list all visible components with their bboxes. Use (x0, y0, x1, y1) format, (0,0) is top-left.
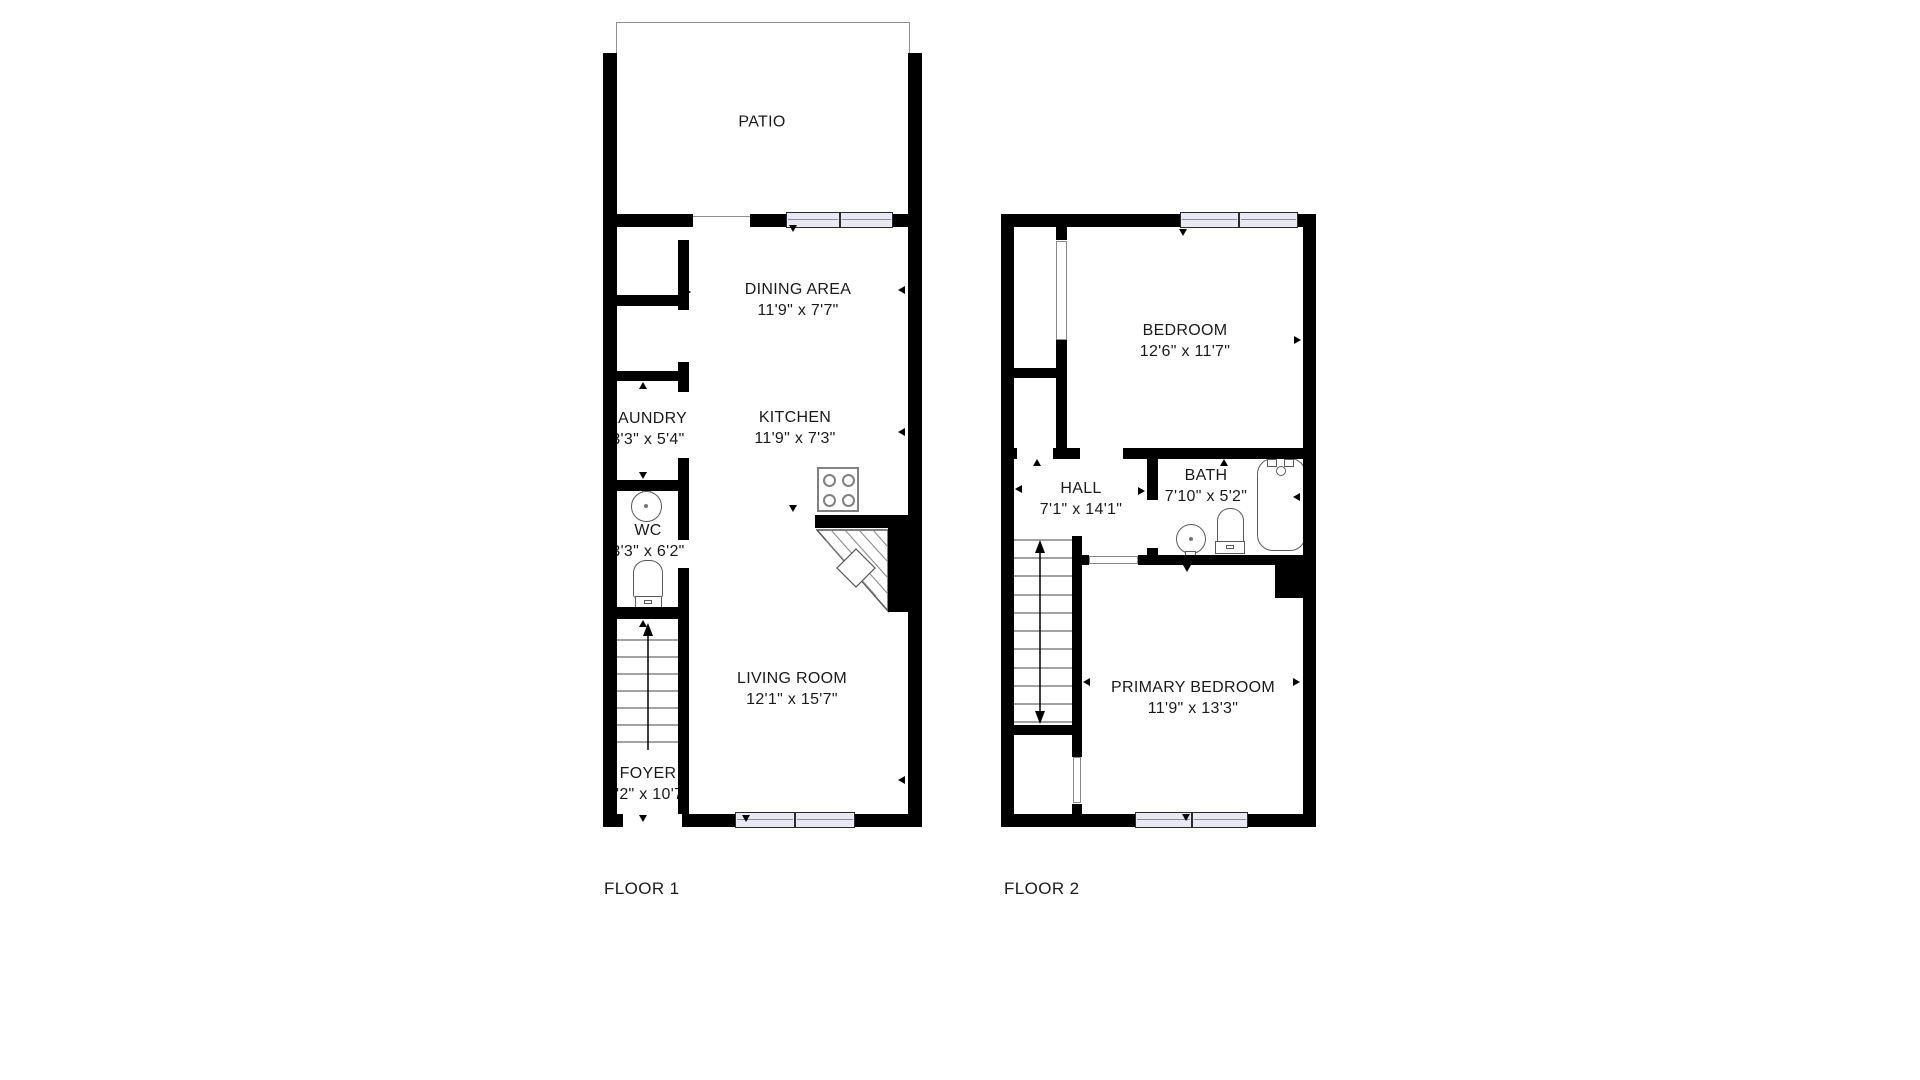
room-label-kitchen: KITCHEN 11'9" x 7'3" (754, 407, 835, 449)
wall (1072, 735, 1082, 757)
marker-arrow-icon (639, 382, 647, 389)
winder-stairs-icon (816, 528, 890, 614)
room-label-foyer: FOYER 3'2" x 10'7" (607, 763, 689, 805)
wall (1014, 368, 1067, 378)
window (735, 812, 855, 828)
marker-arrow-icon (1183, 565, 1191, 572)
room-label-patio: PATIO (738, 112, 785, 133)
floor2-label: FLOOR 2 (1004, 879, 1080, 899)
wall (617, 295, 689, 306)
stairs-icon (1014, 536, 1072, 728)
room-dims: 3'3" x 6'2" (611, 541, 684, 562)
wall (617, 371, 689, 381)
burner (842, 474, 855, 487)
wall (1001, 214, 1014, 827)
room-dims: 3'2" x 10'7" (607, 784, 689, 805)
wall (1072, 804, 1082, 814)
door-panel (1089, 556, 1138, 564)
room-name: KITCHEN (754, 407, 835, 428)
window (786, 212, 893, 228)
room-name: WC (611, 520, 684, 541)
room-dims: 7'1" x 14'1" (1040, 499, 1122, 520)
wall (1082, 555, 1089, 565)
room-label-hall: HALL 7'1" x 14'1" (1040, 478, 1122, 520)
faucet-icon (1284, 459, 1294, 467)
wall (1056, 214, 1067, 240)
wall (1001, 814, 1135, 827)
window-pane (1238, 213, 1297, 227)
room-name: HALL (1040, 478, 1122, 499)
wall (1248, 814, 1316, 827)
room-label-primary-bedroom: PRIMARY BEDROOM 11'9" x 13'3" (1111, 677, 1275, 719)
room-dims: 11'9" x 7'3" (754, 428, 835, 449)
wall (1056, 340, 1067, 448)
wall (908, 53, 922, 827)
room-name: BEDROOM (1140, 320, 1230, 341)
wall (855, 814, 922, 827)
marker-arrow-icon (742, 815, 750, 822)
marker-arrow-icon (898, 286, 905, 294)
marker-arrow-icon (1015, 485, 1022, 493)
room-dims: 3'3" x 5'4" (609, 429, 687, 450)
floorplan-canvas: PATIO (0, 0, 1920, 1080)
drain-dot (1189, 537, 1193, 541)
room-label-laundry: LAUNDRY 3'3" x 5'4" (609, 408, 687, 450)
wall (678, 568, 689, 814)
wall (1147, 448, 1158, 500)
wall (1072, 536, 1082, 735)
room-label-bedroom: BEDROOM 12'6" x 11'7" (1140, 320, 1230, 362)
wall (1303, 214, 1316, 827)
room-name: PRIMARY BEDROOM (1111, 677, 1275, 698)
marker-arrow-icon (1033, 459, 1041, 466)
marker-arrow-icon (639, 620, 647, 627)
wall (603, 53, 617, 827)
room-label-bath: BATH 7'10" x 5'2" (1165, 465, 1247, 507)
marker-arrow-icon (1179, 229, 1187, 236)
marker-arrow-icon (684, 288, 691, 296)
flush-button (644, 600, 652, 604)
wall (617, 480, 689, 491)
room-dims: 11'9" x 7'7" (745, 300, 851, 321)
room-name: LIVING ROOM (737, 668, 847, 689)
wall (1001, 725, 1082, 735)
stove-icon (817, 467, 859, 512)
wall (1001, 214, 1180, 227)
wall (1298, 214, 1316, 227)
wall (888, 528, 922, 612)
room-label-dining-area: DINING AREA 11'9" x 7'7" (745, 279, 851, 321)
marker-arrow-icon (607, 539, 614, 547)
marker-arrow-icon (1294, 336, 1301, 344)
marker-arrow-icon (1220, 459, 1228, 466)
marker-arrow-icon (1293, 493, 1300, 501)
window-pane (794, 813, 854, 827)
wall (603, 814, 623, 827)
door-panel (1073, 757, 1081, 803)
room-name: PATIO (738, 112, 785, 133)
room-label-living-room: LIVING ROOM 12'1" x 15'7" (737, 668, 847, 710)
burner (842, 494, 855, 507)
wall (893, 214, 922, 227)
toilet-icon (1217, 508, 1244, 543)
wall (1138, 555, 1316, 565)
wall (750, 214, 786, 227)
room-dims: 7'10" x 5'2" (1165, 486, 1247, 507)
marker-arrow-icon (789, 225, 797, 232)
wall (678, 458, 689, 540)
wall (1275, 565, 1316, 598)
wall (815, 515, 922, 528)
marker-arrow-icon (789, 505, 797, 512)
marker-arrow-icon (639, 815, 647, 822)
marker-arrow-icon (898, 428, 905, 436)
room-dims: 12'6" x 11'7" (1140, 341, 1230, 362)
faucet-icon (1276, 466, 1286, 476)
marker-arrow-icon (1138, 487, 1145, 495)
room-name: BATH (1165, 465, 1247, 486)
wall (682, 814, 735, 827)
window-pane (1181, 213, 1238, 227)
flush-button (1226, 545, 1234, 549)
wall (617, 607, 689, 619)
marker-arrow-icon (1182, 814, 1190, 821)
room-label-wc: WC 3'3" x 6'2" (611, 520, 684, 562)
drain-dot (644, 504, 648, 508)
room-name: DINING AREA (745, 279, 851, 300)
toilet-icon (633, 560, 663, 598)
wall (1053, 448, 1080, 459)
burner (823, 494, 836, 507)
room-dims: 11'9" x 13'3" (1111, 698, 1275, 719)
wall (678, 214, 689, 223)
floor1-label: FLOOR 1 (604, 879, 680, 899)
faucet-icon (1267, 459, 1277, 467)
burner (823, 474, 836, 487)
marker-arrow-icon (639, 472, 647, 479)
marker-arrow-icon (1083, 678, 1090, 686)
window (1135, 812, 1248, 828)
room-name: LAUNDRY (609, 408, 687, 429)
wall (1001, 448, 1017, 459)
window-pane (1191, 813, 1248, 827)
room-dims: 12'1" x 15'7" (737, 689, 847, 710)
door-panel (1056, 241, 1067, 340)
room-name: FOYER (607, 763, 689, 784)
window (1180, 212, 1298, 228)
marker-arrow-icon (898, 776, 905, 784)
window-pane (839, 213, 893, 227)
marker-arrow-icon (1293, 678, 1300, 686)
